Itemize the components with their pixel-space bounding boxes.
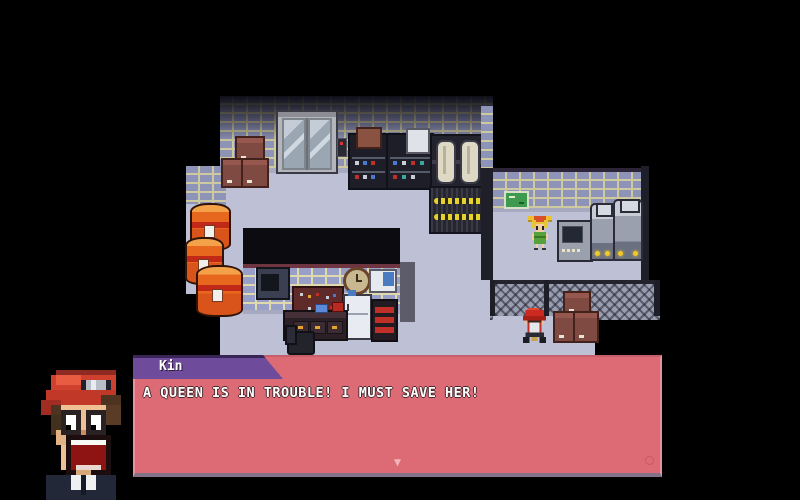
- oil-barrel-3: [196, 265, 243, 317]
- portrait: [36, 370, 131, 500]
- left-wing-wall: [186, 166, 226, 206]
- elevator-lintel: [278, 112, 336, 117]
- storage-shelf-left: [348, 133, 389, 190]
- white-machine: [406, 128, 430, 154]
- counter-endcap: [400, 262, 415, 322]
- girl-npc-sprite: [528, 214, 552, 252]
- cryo-tubes: [430, 134, 487, 191]
- fence-post-3: [654, 280, 660, 316]
- hazard-cabinet: [429, 186, 489, 234]
- robot-machine-2: [613, 199, 643, 261]
- elevator-call-panel: [337, 138, 347, 157]
- advance-arrow-icon[interactable]: ▼: [394, 457, 401, 467]
- elevator-door-right: [308, 118, 332, 170]
- kin-portrait-sprite: [36, 370, 131, 500]
- girl-npc: [528, 214, 552, 252]
- elevator-door-left: [282, 118, 306, 170]
- wall-column: [481, 106, 493, 168]
- computer-terminal: [557, 220, 593, 262]
- room-divider-wall: [481, 168, 493, 280]
- blue-paper: [315, 304, 328, 313]
- game-screen: Kin A QUEEN IS IN TROUBLE! I MUST SAVE H…: [0, 0, 800, 500]
- kid-npc: [521, 308, 548, 345]
- speaker-name: Kin: [159, 359, 182, 374]
- red-rack: [371, 299, 398, 342]
- red-toolbox: [332, 302, 344, 312]
- auto-indicator-icon: [645, 456, 654, 465]
- dialog-box[interactable]: Kin A QUEEN IS IN TROUBLE! I MUST SAVE H…: [133, 355, 662, 477]
- cardboard-boxes-stack-2: [553, 291, 597, 341]
- cardboard-boxes-stack: [221, 136, 267, 186]
- microwave: [256, 267, 290, 300]
- fence-post-1: [490, 280, 495, 316]
- name-tag-border: [133, 355, 283, 358]
- elevator-doors: [282, 118, 332, 170]
- dialog-text: A QUEEN IS IN TROUBLE! I MUST SAVE HER!: [143, 385, 479, 401]
- counter-window: [243, 228, 400, 266]
- elevator: [276, 110, 338, 174]
- office-chair: [287, 331, 315, 355]
- wall-cabinet: [369, 269, 397, 293]
- speaker-name-tag: Kin: [133, 355, 283, 379]
- box-on-shelf: [356, 127, 382, 149]
- robot-machine-1: [590, 203, 615, 261]
- kid-npc-sprite: [521, 308, 548, 345]
- exit-sign: [504, 191, 529, 209]
